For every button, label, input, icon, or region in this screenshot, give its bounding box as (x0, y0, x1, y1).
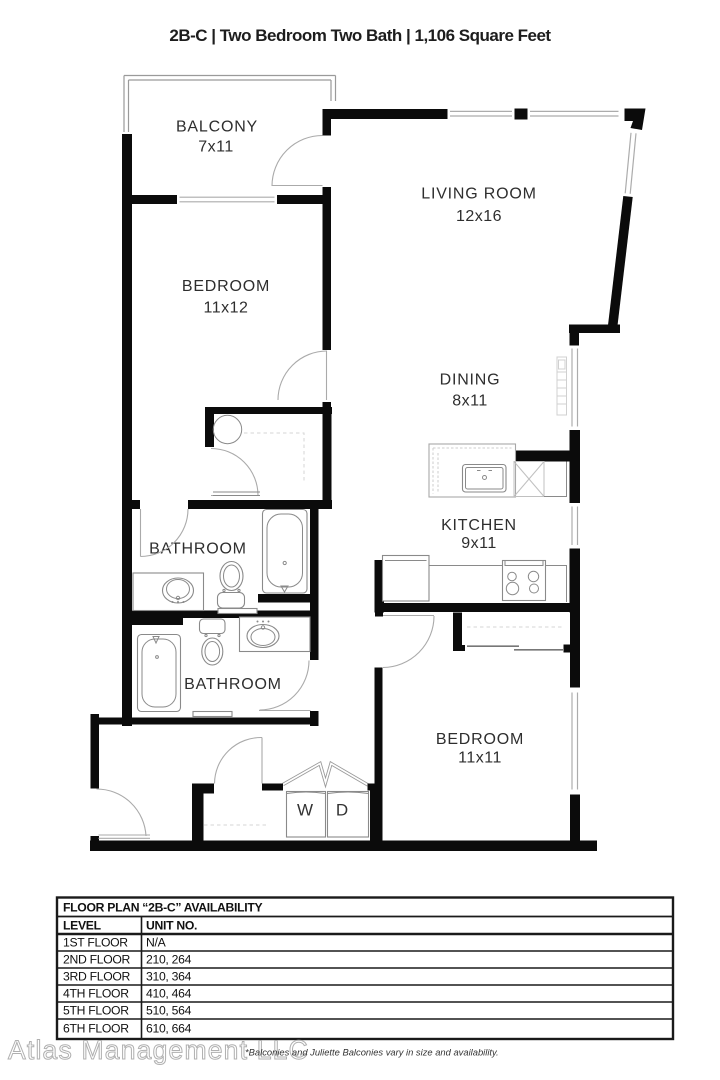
svg-text:BATHROOM: BATHROOM (184, 676, 282, 693)
svg-text:2ND FLOOR: 2ND FLOOR (63, 953, 131, 967)
svg-text:LEVEL: LEVEL (63, 919, 102, 933)
svg-text:510, 564: 510, 564 (146, 1004, 192, 1018)
svg-text:N/A: N/A (146, 936, 167, 950)
svg-text:DINING: DINING (440, 372, 501, 389)
svg-text:BALCONY: BALCONY (176, 119, 258, 136)
svg-text:3RD FLOOR: 3RD FLOOR (63, 970, 131, 984)
svg-text:BEDROOM: BEDROOM (436, 731, 524, 748)
svg-text:LIVING ROOM: LIVING ROOM (421, 186, 536, 203)
svg-text:KITCHEN: KITCHEN (441, 517, 517, 534)
svg-text:12x16: 12x16 (456, 208, 502, 225)
svg-text:410, 464: 410, 464 (146, 987, 192, 1001)
svg-text:2B-C | Two Bedroom Two Bath |: 2B-C | Two Bedroom Two Bath | 1,106 Squa… (169, 26, 551, 45)
svg-text:11x11: 11x11 (458, 750, 502, 767)
svg-text:*Balconies and Juliette Balcon: *Balconies and Juliette Balconies vary i… (245, 1047, 499, 1058)
svg-text:FLOOR PLAN “2B-C” AVAILABILITY: FLOOR PLAN “2B-C” AVAILABILITY (63, 901, 262, 915)
svg-text:BEDROOM: BEDROOM (182, 278, 270, 295)
svg-text:7x11: 7x11 (198, 139, 234, 156)
svg-text:W: W (297, 801, 313, 820)
svg-text:8x11: 8x11 (452, 393, 488, 410)
svg-text:5TH FLOOR: 5TH FLOOR (63, 1004, 129, 1018)
svg-text:D: D (336, 801, 348, 820)
svg-text:BATHROOM: BATHROOM (149, 541, 247, 558)
svg-text:210, 264: 210, 264 (146, 953, 192, 967)
svg-text:UNIT NO.: UNIT NO. (146, 919, 197, 933)
svg-text:4TH FLOOR: 4TH FLOOR (63, 987, 129, 1001)
svg-text:310, 364: 310, 364 (146, 970, 192, 984)
svg-text:11x12: 11x12 (204, 300, 249, 317)
svg-text:9x11: 9x11 (461, 535, 497, 552)
svg-text:6TH FLOOR: 6TH FLOOR (63, 1022, 129, 1036)
svg-text:610, 664: 610, 664 (146, 1022, 192, 1036)
svg-text:1ST FLOOR: 1ST FLOOR (63, 936, 128, 950)
